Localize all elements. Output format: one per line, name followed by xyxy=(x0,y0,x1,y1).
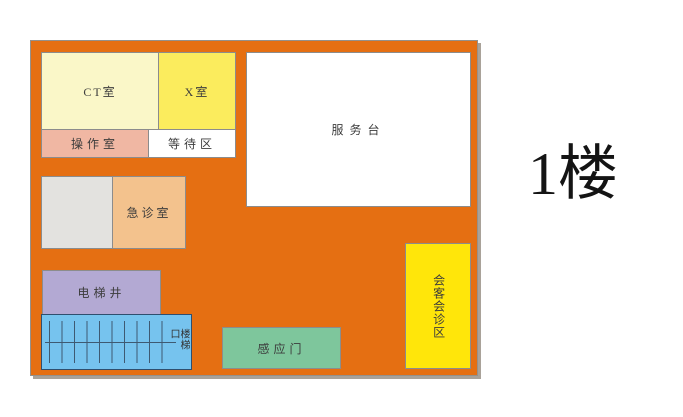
room-waiting: 等待区 xyxy=(148,129,236,158)
room-stairway-label: 楼梯口 xyxy=(168,329,188,356)
floor-title: 1楼 xyxy=(528,143,678,205)
room-meeting-consult: 会客会诊区 xyxy=(405,243,471,369)
floor-plan-canvas: CT室 X室 操作室 等待区 服务台 急诊室 电梯井 楼梯口 感 xyxy=(0,0,683,417)
room-operation-label: 操作室 xyxy=(71,135,119,152)
room-operation: 操作室 xyxy=(41,129,149,158)
room-xray: X室 xyxy=(158,52,236,130)
room-service-desk-label: 服务台 xyxy=(331,121,385,138)
room-ct-label: CT室 xyxy=(83,83,116,100)
room-meeting-consult-label: 会客会诊区 xyxy=(431,274,444,339)
stair-center-line-icon xyxy=(45,342,176,343)
room-elevator-shaft: 电梯井 xyxy=(42,270,161,315)
room-waiting-label: 等待区 xyxy=(168,135,216,152)
room-emergency-label: 急诊室 xyxy=(126,204,171,221)
floor-area: CT室 X室 操作室 等待区 服务台 急诊室 电梯井 楼梯口 感 xyxy=(30,40,478,376)
room-elevator-shaft-label: 电梯井 xyxy=(77,284,125,301)
room-stairway: 楼梯口 xyxy=(41,314,192,370)
room-unlabeled xyxy=(41,176,113,249)
room-sensor-door: 感应门 xyxy=(222,327,341,369)
room-emergency: 急诊室 xyxy=(112,176,186,249)
room-ct: CT室 xyxy=(41,52,159,130)
room-xray-label: X室 xyxy=(185,83,210,100)
room-service-desk: 服务台 xyxy=(246,52,471,207)
room-sensor-door-label: 感应门 xyxy=(257,340,305,357)
